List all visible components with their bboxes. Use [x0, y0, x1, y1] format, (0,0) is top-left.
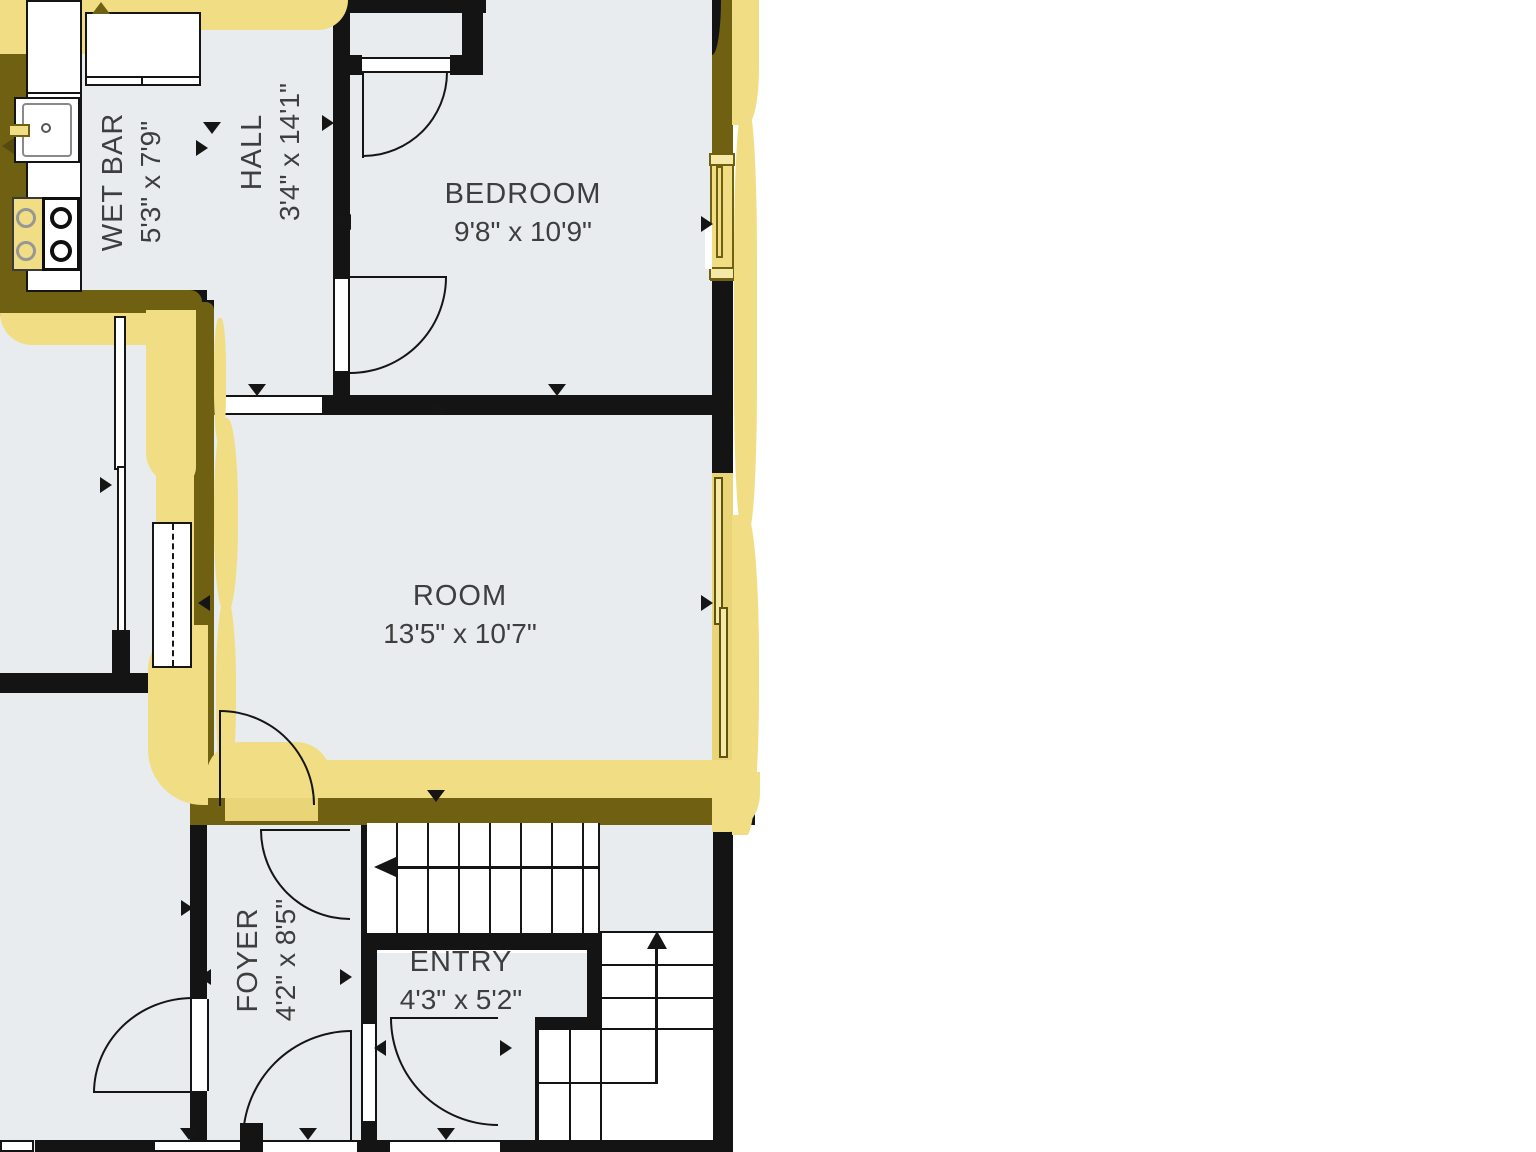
wall-closet-right: [462, 0, 483, 60]
marker-down-icon: [548, 384, 566, 396]
sink-tab: [8, 124, 30, 137]
marker-down-icon: [299, 1128, 317, 1140]
marker-down-icon: [203, 122, 221, 134]
partition-slider-lower: [117, 466, 126, 632]
opening-entry-door: [361, 1024, 377, 1121]
room-name: FOYER: [230, 880, 267, 1040]
bedroom-window-pane: [716, 166, 723, 258]
room-slider-panel: [719, 607, 728, 758]
window-bottom-left: [0, 1140, 34, 1152]
marker-right-icon: [181, 900, 193, 916]
marker-right-icon: [100, 477, 112, 493]
stair-line: [537, 1082, 658, 1084]
opening-closet-door: [362, 57, 450, 73]
stairs-lower-arrow-line: [655, 949, 658, 1084]
label-room: ROOM 13'5" x 10'7": [310, 578, 610, 652]
marker-down-icon: [427, 790, 445, 802]
wall-right-lower: [713, 825, 733, 1152]
marker-down-icon: [248, 384, 266, 396]
wall-divider-stub: [112, 630, 130, 674]
stairs-upper-arrow-line: [392, 866, 598, 869]
room-name: BEDROOM: [373, 176, 673, 213]
wetbar-counter-divider: [26, 92, 82, 94]
highlight-stroke: [214, 318, 226, 443]
stair-line: [569, 1030, 571, 1140]
marker-right-icon: [196, 140, 208, 156]
wetbar-cabinet: [85, 12, 201, 86]
room-name: WET BAR: [95, 87, 132, 277]
wall-closet-bottom-l: [333, 55, 362, 75]
room-name: HALL: [234, 57, 271, 247]
marker-right-icon: [500, 1040, 512, 1056]
room-dims: 4'2" x 8'5": [267, 880, 304, 1040]
partition-slider-upper: [114, 316, 126, 470]
burner-icon: [50, 207, 72, 229]
room-dims: 3'4" x 14'1": [271, 57, 308, 247]
room-slider-panel: [714, 477, 723, 625]
floor-stair-landing: [600, 823, 713, 933]
faucet-icon: [41, 123, 51, 133]
wall-bottom-c: [500, 1140, 733, 1152]
bedroom-window-cap-bottom: [709, 267, 735, 280]
label-bedroom: BEDROOM 9'8" x 10'9": [373, 176, 673, 250]
label-hall: HALL 3'4" x 14'1": [234, 57, 298, 247]
burner-icon: [16, 208, 36, 228]
bedroom-window-cap-top: [709, 153, 735, 166]
closet-bifold-dash: [172, 524, 174, 666]
wall-entry-right: [587, 948, 600, 1017]
burner-icon: [16, 241, 36, 261]
marker-up-icon: [92, 2, 110, 14]
marker-right-icon: [340, 969, 352, 985]
marker-right-icon: [701, 216, 713, 232]
stairs-upper: [367, 823, 600, 933]
room-dims: 9'8" x 10'9": [373, 213, 673, 250]
room-dims: 5'3" x 7'9": [132, 87, 169, 277]
stair-line: [600, 933, 602, 1140]
wetbar-cabinet-tick: [141, 76, 143, 84]
opening-exterior-a: [155, 1140, 240, 1152]
wall-bottom-b: [357, 1140, 390, 1152]
stairs-up-arrow-icon: [647, 931, 667, 949]
room-name: ROOM: [310, 578, 610, 615]
marker-left-icon: [374, 1040, 386, 1056]
highlight-stroke: [732, 0, 759, 125]
opening-exterior-foyer: [263, 1140, 357, 1152]
highlight-stroke: [214, 418, 238, 613]
marker-left-icon: [339, 214, 351, 230]
label-foyer: FOYER 4'2" x 8'5": [230, 880, 292, 1040]
stairs-left-arrow-icon: [374, 857, 396, 877]
marker-right-icon: [322, 115, 334, 131]
wall-foyer-entry-lower: [361, 1121, 377, 1140]
marker-left-icon: [199, 969, 211, 985]
room-dims: 4'3" x 5'2": [361, 981, 561, 1018]
marker-up-icon: [429, 402, 447, 414]
room-dims: 13'5" x 10'7": [310, 615, 610, 652]
wall-hall-bedroom-upper: [333, 75, 350, 279]
opening-hall-to-room: [223, 395, 322, 415]
opening-exterior-entry: [390, 1140, 500, 1152]
marker-down-icon: [180, 1128, 198, 1140]
marker-right-icon: [701, 595, 713, 611]
floor-plan-canvas: WET BAR 5'3" x 7'9" HALL 3'4" x 14'1" BE…: [0, 0, 1536, 1152]
marker-left-icon: [2, 138, 14, 154]
wall-hall-bedroom-lower: [333, 371, 350, 397]
stair-line: [535, 1028, 713, 1030]
opening-bedroom-door: [333, 279, 350, 371]
highlight-stroke: [734, 110, 757, 530]
wall-room-top-r: [322, 395, 733, 415]
room-name: ENTRY: [361, 944, 561, 981]
burner-icon: [50, 240, 72, 262]
wall-bottom-a: [35, 1140, 155, 1152]
label-entry: ENTRY 4'3" x 5'2": [361, 944, 561, 1018]
marker-down-icon: [437, 1128, 455, 1140]
marker-left-icon: [198, 595, 210, 611]
wetbar-cabinet-line: [87, 76, 199, 78]
label-wet-bar: WET BAR 5'3" x 7'9": [95, 87, 161, 277]
